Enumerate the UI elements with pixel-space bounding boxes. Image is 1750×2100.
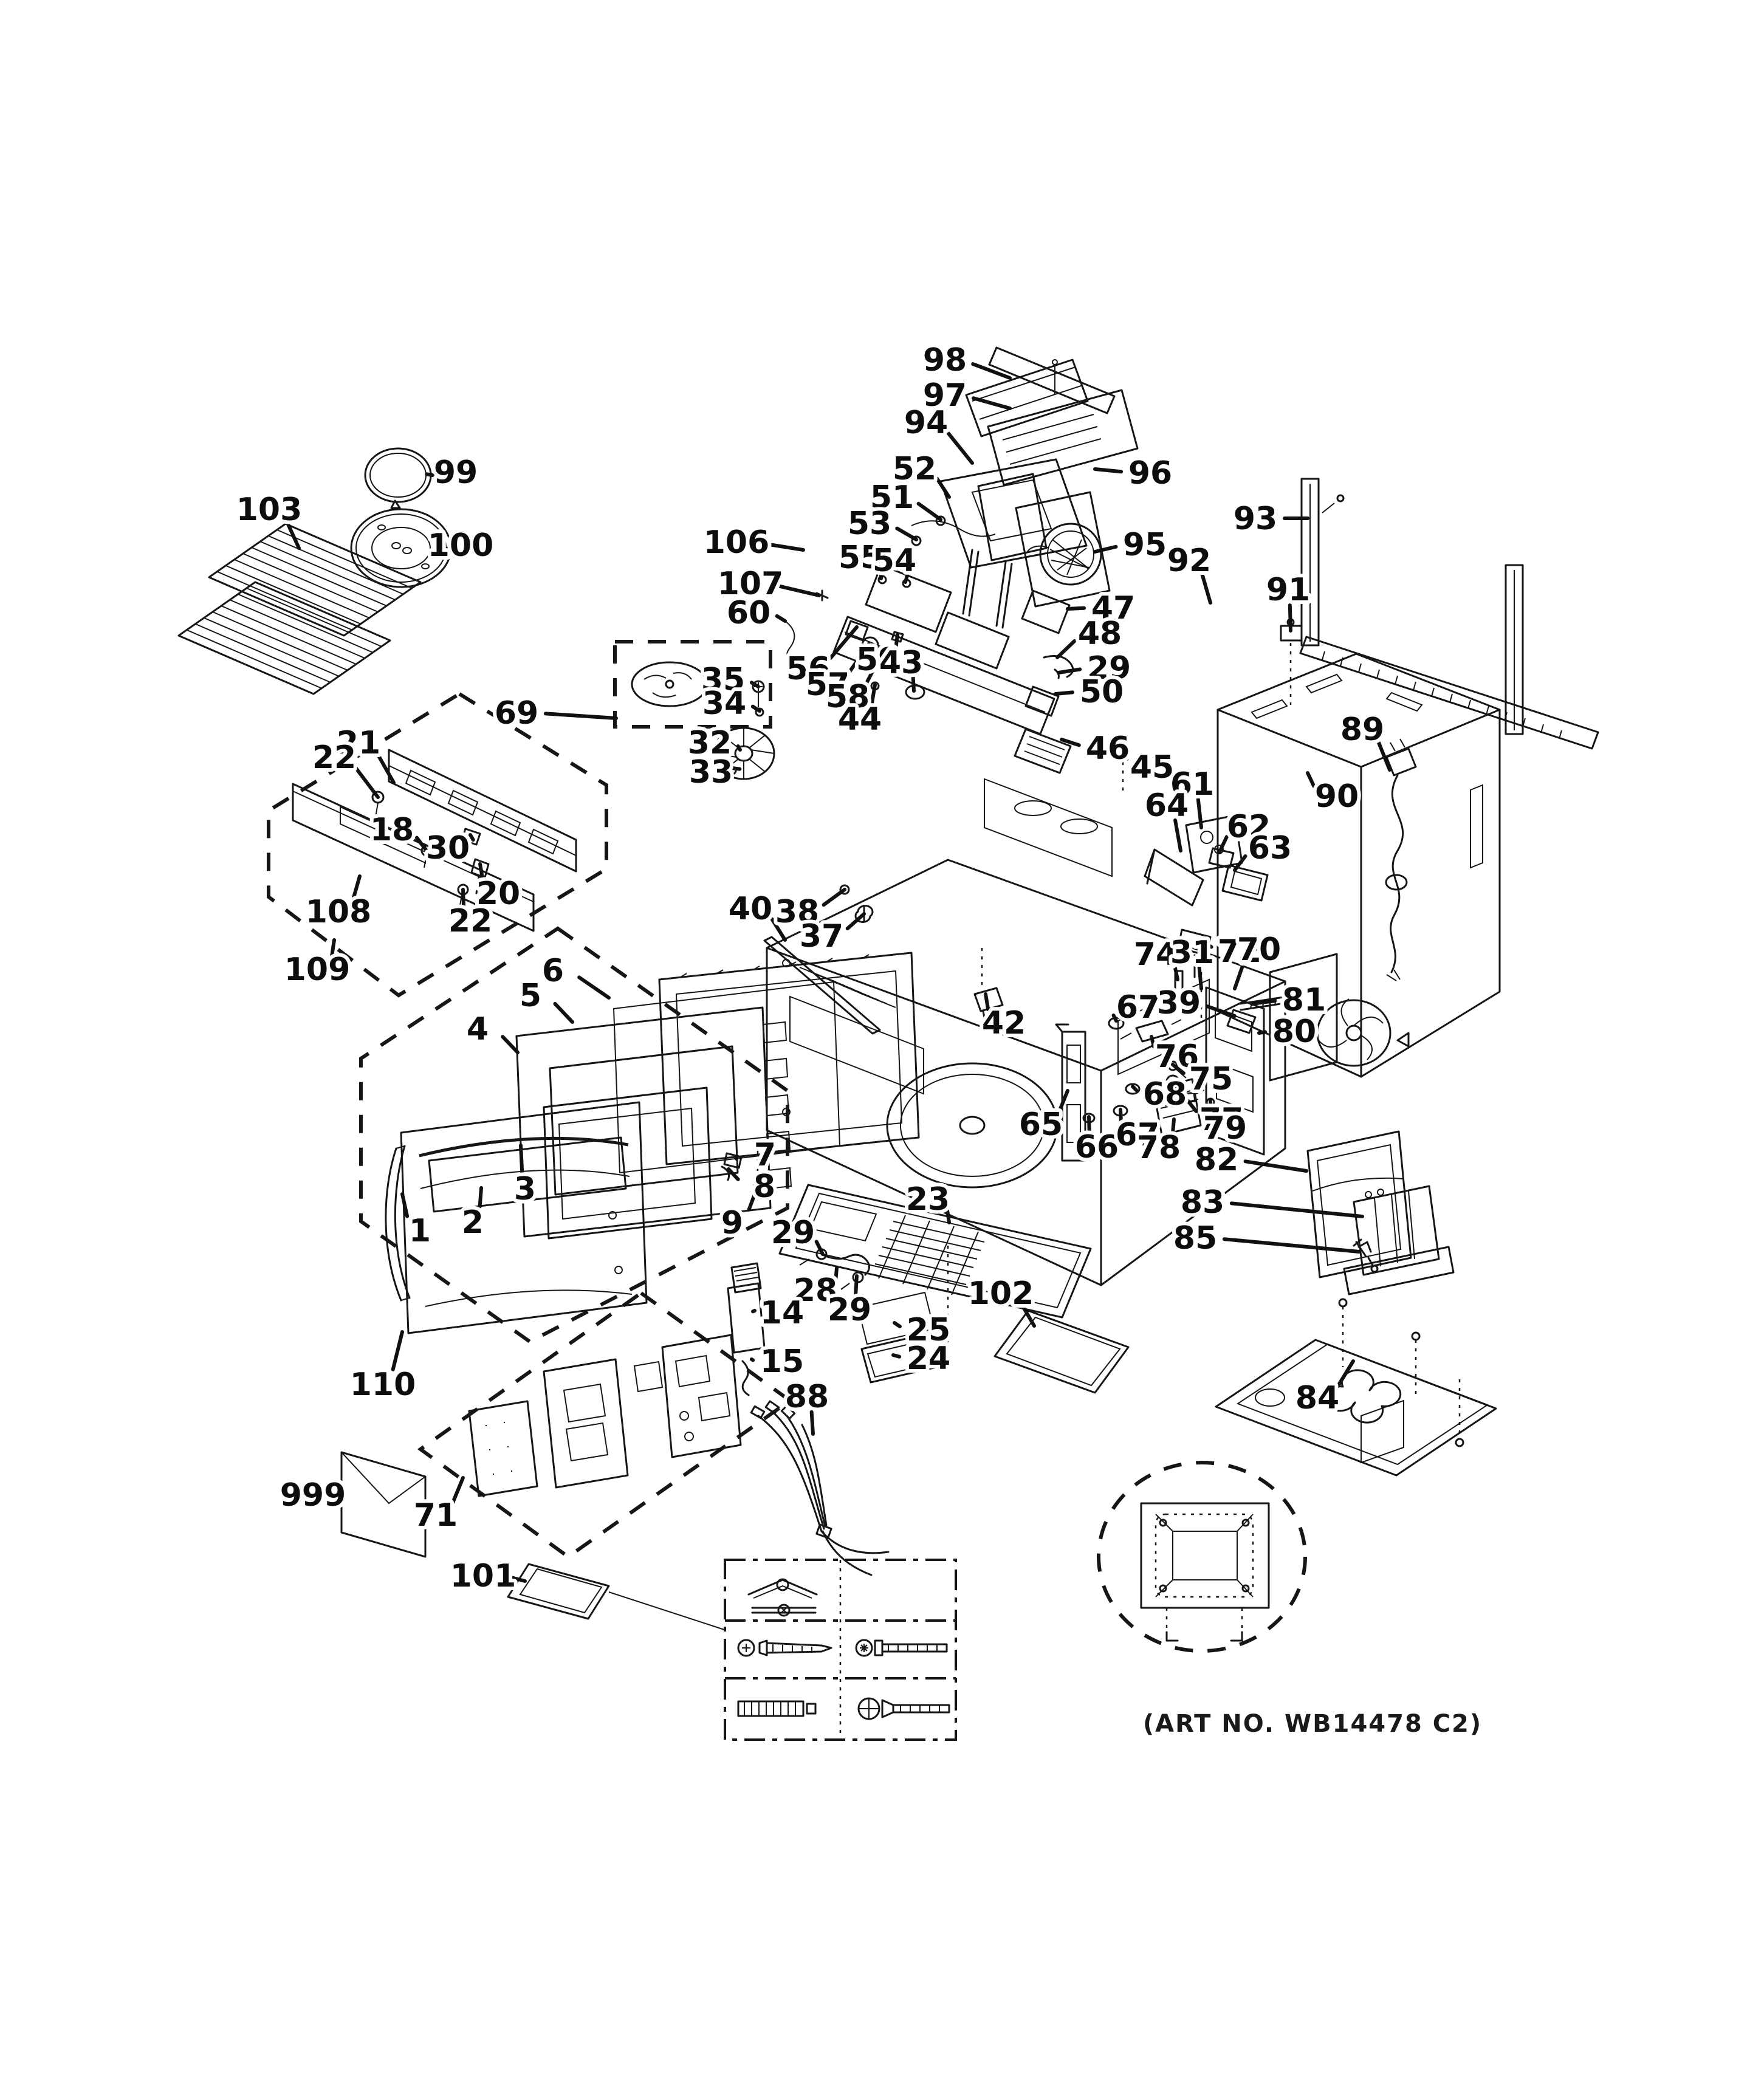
line-art-segment: [893, 1705, 949, 1712]
threaded-stud: [738, 1701, 815, 1716]
part-label-75-63: 75: [1189, 1061, 1233, 1097]
line-art-segment: [749, 1580, 817, 1594]
part-label-99-40: 99: [434, 455, 478, 491]
line-art-segment: [1015, 801, 1051, 815]
part-label-54-10: 54: [873, 543, 916, 579]
line-art-segment: [634, 1362, 662, 1391]
part-label-39-59: 39: [1157, 985, 1201, 1021]
line-art-segment: [508, 1564, 609, 1619]
line-art-segment: [218, 530, 412, 630]
line-art-segment: [1317, 1000, 1390, 1066]
part-label-29-76: 29: [771, 1215, 815, 1251]
leader-line-3: [521, 1145, 522, 1173]
line-art-segment: [1160, 1585, 1166, 1591]
line-art-segment: [728, 1283, 764, 1353]
line-art-segment: [1056, 1024, 1068, 1032]
leader-line-60: [777, 616, 785, 621]
part-label-85-85: 85: [1173, 1220, 1217, 1257]
part-label-93-7: 93: [1234, 501, 1277, 537]
line-art-segment: [911, 521, 995, 536]
line-art-segment: [1322, 503, 1334, 513]
line-art-segment: [724, 1153, 741, 1168]
microwave-exploded-diagram: 9897945296515393106555495921076091474829…: [0, 0, 1750, 2100]
leader-line-24: [893, 1355, 899, 1357]
part-label-30-45: 30: [426, 830, 470, 866]
part-label-64-33: 64: [1145, 787, 1189, 824]
leader-line-80: [1259, 1032, 1265, 1033]
wire-harness: [751, 1401, 888, 1575]
wire-clip: [743, 1361, 749, 1395]
line-art-segment: [187, 588, 382, 688]
line-art-segment: [1003, 414, 1101, 464]
line-art-segment: [875, 1641, 882, 1655]
power-board: [728, 1263, 764, 1395]
line-art-segment: [742, 1644, 750, 1652]
part-label-29-78: 29: [828, 1292, 871, 1328]
line-art-segment: [1231, 871, 1261, 894]
line-art-segment: [1173, 1531, 1237, 1580]
part-label-70-57: 70: [1237, 932, 1281, 968]
part-label-101-91: 101: [450, 1558, 516, 1594]
part-label-95-11: 95: [1123, 527, 1167, 563]
line-art-segment: [1339, 1299, 1347, 1306]
line-art-segment: [699, 1393, 730, 1421]
leader-line-106: [766, 544, 803, 550]
line-art-segment: [392, 543, 400, 549]
part-label-999-89: 999: [280, 1477, 346, 1514]
line-art-segment: [1007, 1317, 1120, 1385]
part-label-66-67: 66: [1075, 1129, 1119, 1165]
line-art-segment: [564, 1384, 605, 1422]
line-art-segment: [1050, 540, 1089, 575]
line-art-segment: [766, 1401, 779, 1413]
line-art-segment: [422, 564, 429, 569]
leader-line-64: [1175, 820, 1181, 851]
turntable-ring: [365, 448, 431, 508]
control-boards: [469, 1335, 741, 1496]
part-label-31-56: 31: [1170, 935, 1214, 971]
line-art-segment: [1312, 1178, 1404, 1191]
install-detail: [1099, 1463, 1305, 1651]
part-label-90-34: 90: [1315, 778, 1359, 815]
part-label-22-48: 22: [448, 903, 492, 939]
leader-line-29: [1059, 669, 1080, 673]
line-art-segment: [1160, 1520, 1166, 1526]
grease-filter: [508, 1564, 724, 1630]
leader-line-25: [894, 1323, 900, 1326]
stirrer-group-outline: [615, 642, 770, 727]
part-label-23-72: 23: [906, 1181, 950, 1218]
leader-line-48: [1057, 641, 1074, 657]
part-label-84-86: 84: [1295, 1380, 1339, 1416]
part-label-83-84: 83: [1181, 1184, 1224, 1221]
line-art-segment: [1145, 849, 1203, 905]
part-label-42-53: 42: [982, 1005, 1026, 1041]
part-label-33-38: 33: [689, 754, 733, 791]
line-art-segment: [1099, 1463, 1305, 1651]
part-label-1-92: 1: [409, 1213, 431, 1249]
part-label-63-36: 63: [1248, 830, 1292, 866]
leader-line-50: [1055, 692, 1072, 694]
base-plate: [1216, 1299, 1496, 1475]
leader-line-22: [355, 768, 378, 797]
leader-line-30: [470, 835, 473, 840]
literature-envelope: [341, 1452, 425, 1557]
line-art-segment: [1398, 1033, 1409, 1046]
line-art-segment: [1308, 1131, 1411, 1277]
leader-line-32: [738, 746, 740, 750]
line-art-segment: [566, 1423, 608, 1461]
flat-head-screw: [859, 1698, 949, 1719]
part-label-37-52: 37: [800, 918, 843, 955]
line-art-segment: [520, 1569, 602, 1613]
leader-line-85: [1224, 1239, 1359, 1252]
line-art-segment: [1387, 693, 1422, 711]
part-label-22-43: 22: [312, 739, 356, 776]
control-panel-assembly: [389, 750, 576, 871]
line-art-segment: [882, 1700, 893, 1717]
line-art-segment: [751, 1406, 764, 1418]
line-art-segment: [1067, 1045, 1080, 1083]
door-glass: [614, 982, 840, 1173]
line-art-segment: [486, 1422, 512, 1475]
line-art-segment: [632, 662, 707, 706]
leader-line-76: [1151, 1037, 1154, 1046]
line-art-segment: [1052, 360, 1057, 365]
line-art-segment: [469, 1401, 537, 1496]
part-label-14-80: 14: [760, 1295, 804, 1331]
part-label-9-75: 9: [721, 1205, 743, 1241]
line-art-segment: [1387, 749, 1416, 775]
blower-fan: [978, 474, 1110, 606]
part-label-91-15: 91: [1266, 572, 1310, 608]
leader-line-95: [1095, 547, 1116, 552]
board-group-outline: [420, 1293, 790, 1557]
line-art-segment: [1167, 1608, 1242, 1641]
line-art-segment: [644, 673, 691, 697]
part-label-60-14: 60: [727, 595, 770, 631]
part-label-46-29: 46: [1086, 730, 1130, 767]
line-art-segment: [1387, 970, 1400, 981]
part-label-6-97: 6: [542, 953, 564, 989]
leader-line-4: [503, 1037, 518, 1052]
part-label-5-96: 5: [520, 978, 541, 1014]
part-label-98-0: 98: [923, 342, 967, 379]
line-art-segment: [777, 1579, 788, 1590]
line-art-segment: [1319, 999, 1383, 1060]
line-art-segment: [764, 1059, 787, 1079]
part-label-79-70: 79: [1203, 1110, 1247, 1147]
part-label-82-71: 82: [1195, 1142, 1238, 1178]
leader-line-82: [1246, 1161, 1306, 1171]
line-art-segment: [209, 524, 420, 636]
line-art-segment: [685, 1432, 693, 1441]
part-label-102-79: 102: [968, 1275, 1034, 1312]
leader-line-88: [812, 1412, 813, 1434]
line-art-segment: [978, 474, 1046, 560]
line-art-segment: [1306, 674, 1342, 693]
line-art-segment: [807, 1704, 815, 1714]
part-label-109-49: 109: [284, 952, 351, 988]
line-art-segment: [680, 1412, 688, 1420]
line-art-segment: [1412, 1333, 1419, 1340]
line-art-segment: [1216, 1340, 1496, 1475]
line-art-segment: [960, 1117, 984, 1134]
line-art-segment: [676, 1356, 710, 1387]
heater-cover: [941, 459, 1086, 568]
leader-line-15: [752, 1359, 753, 1360]
part-label-8-74: 8: [753, 1168, 775, 1205]
part-label-78-69: 78: [1137, 1130, 1181, 1166]
part-label-81-60: 81: [1282, 982, 1326, 1018]
part-label-96-4: 96: [1128, 455, 1172, 492]
line-art-segment: [822, 1531, 888, 1553]
line-art-segment: [766, 1095, 789, 1116]
line-art-segment: [1470, 785, 1483, 868]
line-art-segment: [1391, 775, 1403, 972]
toggle-anchor: [749, 1579, 817, 1616]
leader-line-110: [393, 1332, 402, 1370]
door-group-outline: [361, 928, 787, 1342]
part-label-103-39: 103: [236, 492, 303, 528]
line-art-segment: [370, 453, 426, 497]
line-art-segment: [941, 459, 1086, 568]
leader-line-83: [1232, 1203, 1362, 1216]
leader-line-51: [919, 504, 941, 520]
line-art-segment: [179, 582, 390, 694]
leader-line-1: [402, 1194, 407, 1216]
part-labels: 9897945296515393106555495921076091474829…: [236, 342, 1384, 1594]
line-art-segment: [760, 1641, 767, 1655]
leader-line-5: [555, 1004, 572, 1022]
leader-line-14: [753, 1311, 755, 1311]
part-label-15-83: 15: [760, 1343, 804, 1380]
line-art-segment: [1378, 1189, 1384, 1195]
line-art-segment: [1238, 1344, 1487, 1464]
line-art-segment: [544, 1359, 628, 1487]
leader-line-53: [897, 529, 916, 540]
line-art-segment: [378, 525, 385, 530]
line-art-segment: [1252, 700, 1287, 718]
line-art-segment: [615, 1266, 622, 1274]
part-label-108-47: 108: [306, 894, 372, 930]
part-label-2-93: 2: [462, 1204, 484, 1241]
part-label-94-2: 94: [904, 405, 948, 441]
part-label-71-90: 71: [414, 1497, 458, 1534]
line-art-segment: [888, 1644, 937, 1652]
line-art-segment: [341, 1452, 425, 1503]
line-art-segment: [1347, 1026, 1361, 1040]
leader-line-94: [948, 433, 972, 463]
line-art-segment: [1061, 819, 1097, 834]
leader-line-38: [824, 890, 845, 905]
part-label-106-8: 106: [704, 524, 770, 561]
part-label-34-28: 34: [702, 685, 746, 722]
line-art-segment: [734, 1268, 758, 1281]
line-art-segment: [1022, 591, 1069, 633]
wall-bracket: [1300, 479, 1598, 749]
leader-line-90: [1308, 773, 1314, 786]
line-art-segment: [1156, 1514, 1253, 1597]
line-art-segment: [1015, 729, 1071, 773]
leader-line-96: [1095, 469, 1121, 472]
part-label-110-88: 110: [350, 1367, 416, 1403]
line-art-segment: [1371, 1266, 1378, 1272]
line-art-segment: [767, 1643, 831, 1653]
leader-line-107: [779, 586, 819, 595]
exploded-parts-diagram: 9897945296515393106555495921076091474829…: [0, 0, 1750, 2100]
line-art-segment: [609, 1592, 724, 1630]
line-art-segment: [901, 1705, 939, 1712]
leader-line-69: [546, 713, 616, 718]
line-art-segment: [1337, 495, 1343, 501]
part-label-68-65: 68: [1143, 1076, 1187, 1113]
leader-line-84: [1338, 1361, 1353, 1386]
leader-line-47: [1068, 608, 1084, 609]
line-art-segment: [1365, 1192, 1371, 1198]
leader-line-56: [831, 627, 857, 658]
line-art-segment: [984, 779, 1112, 876]
line-art-segment: [879, 1215, 978, 1295]
line-art-segment: [403, 547, 411, 554]
line-art-segment: [1156, 1514, 1253, 1597]
part-label-65-66: 65: [1019, 1107, 1063, 1143]
line-art-segment: [1201, 831, 1213, 843]
hardware-table: [725, 1560, 956, 1740]
line-art-segment: [662, 1335, 741, 1457]
part-label-88-87: 88: [785, 1379, 829, 1415]
part-label-100-41: 100: [428, 527, 494, 564]
part-label-44-25: 44: [838, 701, 882, 738]
power-cord: [1386, 739, 1416, 981]
part-label-18-44: 18: [370, 812, 414, 848]
part-label-80-61: 80: [1272, 1014, 1316, 1050]
machine-screw: [856, 1640, 947, 1656]
line-art-segment: [365, 448, 431, 502]
part-label-43-24: 43: [879, 645, 923, 681]
line-art-segment: [1167, 1632, 1242, 1641]
part-label-24-82: 24: [907, 1340, 950, 1377]
part-label-53-6: 53: [848, 506, 891, 542]
line-art-segment: [817, 1525, 831, 1538]
leader-line-68: [1133, 1086, 1136, 1090]
line-art-segment: [995, 1311, 1128, 1393]
line-art-segment: [744, 1701, 795, 1716]
part-label-7-73: 7: [754, 1137, 776, 1173]
part-label-69-26: 69: [495, 695, 538, 732]
leader-line-6: [579, 977, 609, 998]
line-art-segment: [341, 1452, 425, 1557]
part-label-45-30: 45: [1130, 749, 1174, 786]
part-label-92-12: 92: [1167, 543, 1211, 579]
capacitor: [1308, 1131, 1411, 1277]
leader-line-91: [1290, 605, 1291, 631]
art-number: (ART NO. WB14478 C2): [1143, 1710, 1482, 1738]
part-label-89-31: 89: [1340, 712, 1384, 748]
part-label-48-17: 48: [1078, 616, 1122, 652]
line-art-segment: [372, 527, 430, 569]
vent-deflectors: [966, 348, 1137, 485]
leader-line-99: [427, 474, 433, 475]
leader-line-33: [732, 768, 739, 769]
line-art-segment: [738, 1701, 803, 1716]
line-art-segment: [1255, 1389, 1285, 1406]
part-label-3-94: 3: [514, 1171, 536, 1207]
leader-line-97: [973, 398, 1010, 408]
line-art-segment: [1456, 1439, 1463, 1446]
part-label-50-19: 50: [1080, 674, 1124, 710]
line-art-segment: [666, 681, 673, 688]
lag-screw: [738, 1640, 831, 1656]
part-label-40-50: 40: [729, 891, 772, 927]
line-art-segment: [860, 1644, 868, 1652]
part-label-4-95: 4: [467, 1011, 489, 1048]
line-art-segment: [811, 1202, 876, 1241]
part-label-67-58: 67: [1116, 989, 1160, 1026]
